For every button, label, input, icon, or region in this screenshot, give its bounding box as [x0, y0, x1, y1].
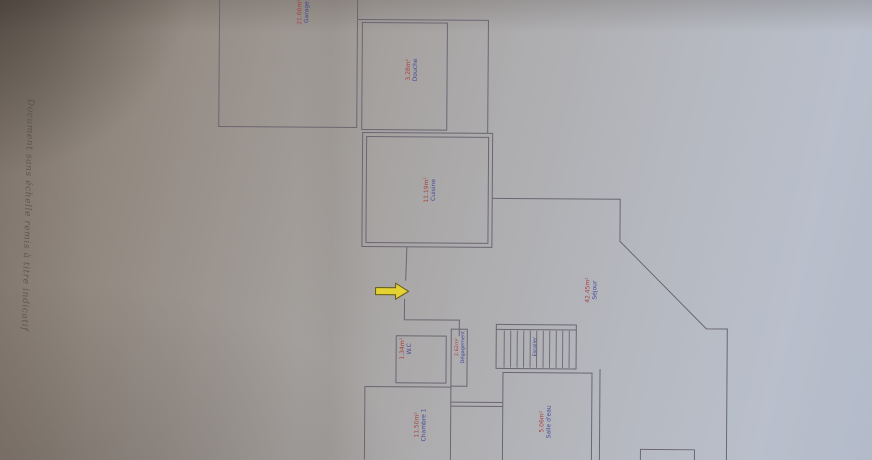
outer-wall-top [357, 19, 489, 133]
room-label-chambre-1: 11.50m² Chambre 1 [413, 408, 428, 441]
room-label-degagement: 2.62m² Dégagement [454, 331, 466, 364]
room-label-salle-eau: 5.06m² Salle d'eau [538, 405, 553, 438]
staircase-inner-wall [496, 329, 576, 330]
room-outline-chambre-1 [364, 387, 451, 460]
outer-wall-right-lower [599, 369, 600, 460]
room-outline-garage [219, 0, 358, 127]
small-structure-outline [640, 449, 694, 460]
room-label-garage: 21.60m² Garage [296, 0, 311, 25]
walls [216, 0, 729, 460]
floor-plan-photo: Document sans échelle remis à titre indi… [0, 0, 872, 460]
room-label-escalier: Escalier [532, 337, 538, 357]
floor-plan-drawing [0, 0, 872, 460]
room-label-wc: 1.34m² W.C [399, 338, 414, 360]
room-label-douche: 3.28m² Douche [405, 58, 420, 81]
entrance-arrow-icon [376, 283, 409, 299]
floor-plan: 21.60m² Garage 3.28m² Douche 11.19m² Cui… [0, 0, 872, 460]
entrance-wall-upper [406, 247, 407, 281]
room-label-sejour: 42.45m² Séjour [584, 277, 599, 303]
room-label-cuisine: 11.19m² Cuisine [423, 177, 438, 203]
